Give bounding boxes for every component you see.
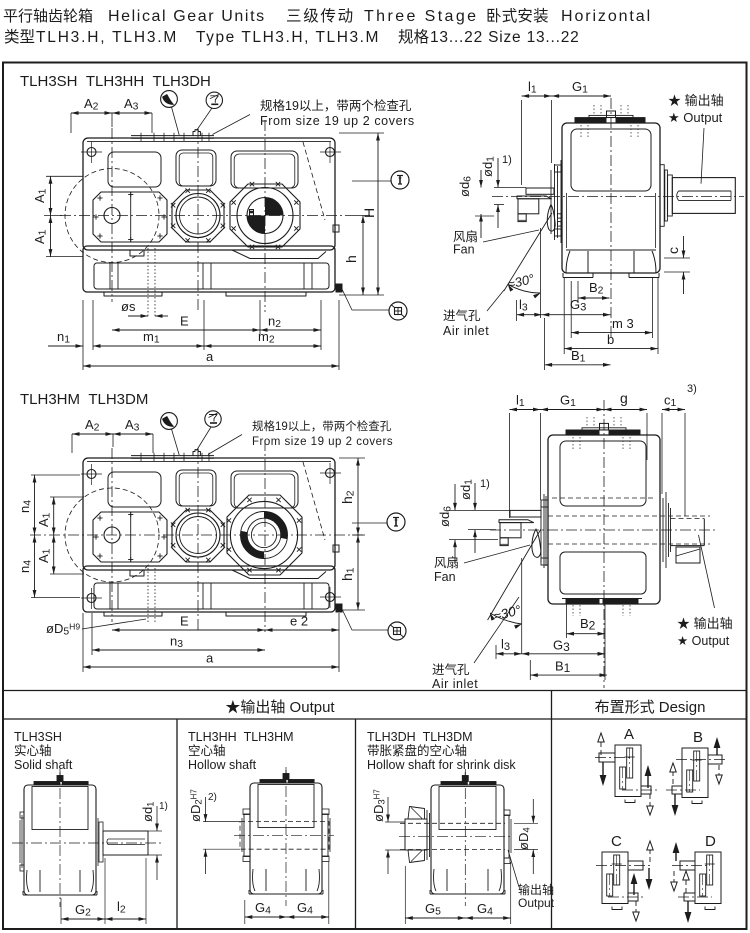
svg-text:空心轴: 空心轴 [188,743,226,758]
svg-text:Solid shaft: Solid shaft [14,758,73,772]
svg-text:1): 1) [159,801,168,812]
svg-text:øs: øs [121,299,136,314]
svg-text:A: A [624,726,634,743]
svg-text:a: a [206,349,214,364]
svg-text:实心轴: 实心轴 [14,743,52,758]
svg-text:规格: 规格 [398,28,430,46]
svg-text:Hollow shaft for shrink disk: Hollow shaft for shrink disk [367,758,516,772]
svg-text:规格19以上，带两个检查孔: 规格19以上，带两个检查孔 [252,419,392,433]
svg-text:g: g [620,390,628,406]
svg-text:1): 1) [502,154,512,166]
svg-text:TLH3DH TLH3DM: TLH3DH TLH3DM [367,730,473,744]
svg-text:平行轴齿轮箱: 平行轴齿轮箱 [3,8,93,25]
svg-text:TLH3HM TLH3DM: TLH3HM TLH3DM [20,391,148,408]
svg-text:B1: B1 [555,659,571,676]
svg-text:★输出轴 Output: ★输出轴 Output [225,699,335,716]
svg-text:b: b [607,332,614,347]
svg-text:TLH3.H, TLH3.M: TLH3.H, TLH3.M [36,29,178,46]
svg-text:风扇: 风扇 [434,555,459,570]
svg-text:Output: Output [518,896,555,910]
svg-text:1): 1) [480,478,490,490]
svg-text:★ Output: ★ Output [668,110,723,125]
svg-text:TLH3HH TLH3HM: TLH3HH TLH3HM [188,730,294,744]
svg-text:3): 3) [687,383,697,395]
svg-text:Three Stage: Three Stage [364,8,478,25]
svg-text:Fan: Fan [453,243,475,257]
svg-text:E: E [180,614,189,629]
svg-text:Air inlet: Air inlet [443,324,489,338]
svg-text:G3: G3 [553,638,570,655]
svg-text:E: E [180,314,189,329]
svg-text:Helical Gear Units: Helical Gear Units [108,8,266,25]
svg-text:D: D [705,833,716,850]
svg-text:B: B [693,729,703,746]
svg-text:Horizontal: Horizontal [561,8,652,25]
svg-text:Air inlet: Air inlet [432,677,478,691]
svg-text:进气孔: 进气孔 [443,308,481,323]
svg-text:进气孔: 进气孔 [432,662,470,677]
svg-text:★ Output: ★ Output [677,634,730,648]
svg-text:e 2: e 2 [290,614,308,629]
svg-text:Fan: Fan [434,570,456,584]
svg-text:H: H [361,208,377,218]
svg-text:规格19以上，带两个检查孔: 规格19以上，带两个检查孔 [260,98,412,113]
svg-text:C: C [611,833,622,850]
svg-text:带胀紧盘的空心轴: 带胀紧盘的空心轴 [367,743,467,758]
svg-text:a: a [206,651,214,666]
svg-text:布置形式 Design: 布置形式 Design [595,699,706,716]
svg-text:TLH3SH: TLH3SH [14,730,62,744]
svg-text:Type TLH3.H, TLH3.M: Type TLH3.H, TLH3.M [196,29,380,46]
svg-text:B2: B2 [580,616,596,633]
svg-text:输出轴: 输出轴 [518,882,554,897]
svg-text:h: h [343,255,359,263]
svg-text:★ 输出轴: ★ 输出轴 [668,93,724,108]
svg-text:三级传动: 三级传动 [286,7,355,25]
svg-text:卧式安装: 卧式安装 [486,7,549,25]
svg-text:From size 19 up 2 covers: From size 19 up 2 covers [252,436,393,448]
svg-text:★ 输出轴: ★ 输出轴 [677,616,733,631]
svg-text:c: c [665,247,681,254]
svg-text:From size 19 up 2 covers: From size 19 up 2 covers [260,114,415,128]
svg-text:13...22 Size 13...22: 13...22 Size 13...22 [430,29,580,46]
svg-text:Hollow shaft: Hollow shaft [188,758,257,772]
svg-text:2): 2) [208,792,217,803]
svg-text:类型: 类型 [4,28,35,46]
svg-text:TLH3SH TLH3HH TLH3DH: TLH3SH TLH3HH TLH3DH [20,73,211,90]
svg-text:m 3: m 3 [612,316,634,331]
